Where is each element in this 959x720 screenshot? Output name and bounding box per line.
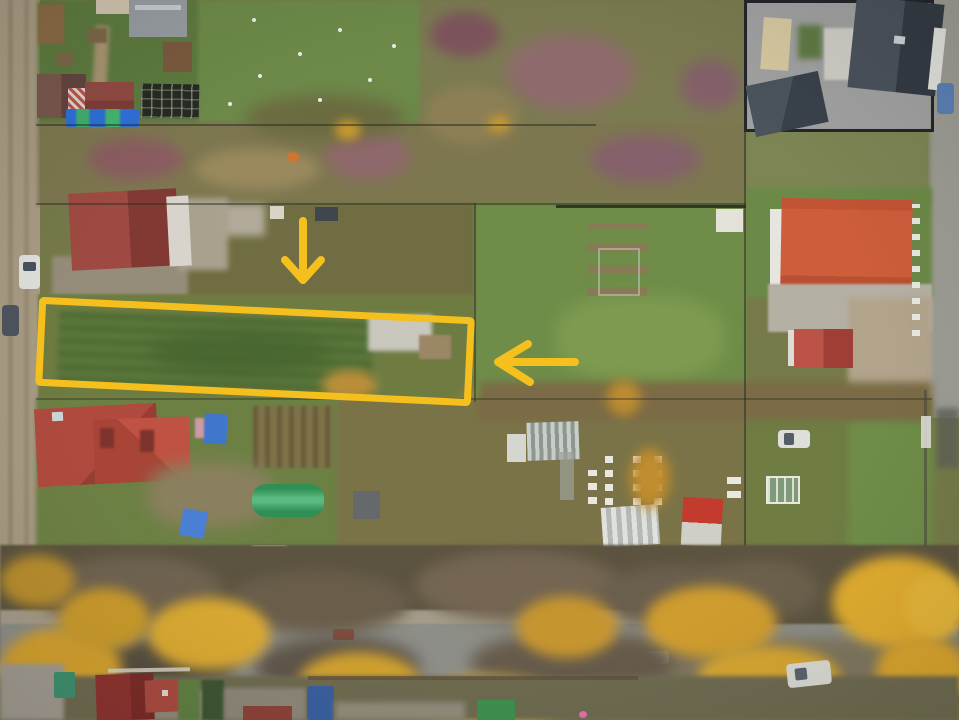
left-arrow-annotation	[489, 336, 583, 390]
down-arrow-annotation	[272, 214, 334, 292]
aerial-photo	[0, 0, 959, 720]
